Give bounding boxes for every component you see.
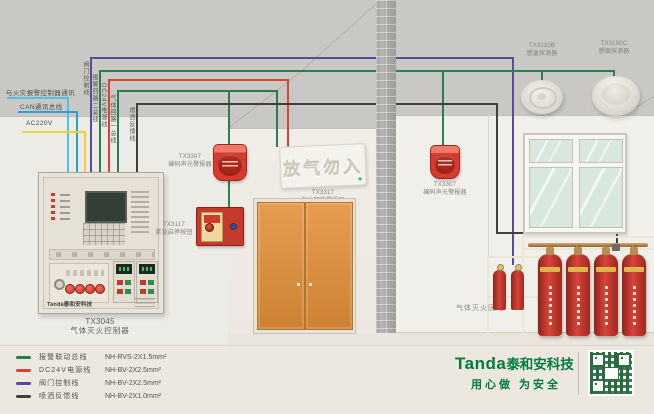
window-pane xyxy=(529,139,573,163)
wire-gas-bus-h xyxy=(117,90,278,92)
door-leaf-right xyxy=(305,202,353,330)
qr-dot xyxy=(595,383,597,385)
detector-dome xyxy=(602,83,630,105)
left-sounder-name: 编码声光警报器 xyxy=(168,161,212,169)
wire-valve-h xyxy=(90,57,513,59)
emergency-button-caption: TX3117 紧急启停按钮 xyxy=(154,221,194,238)
brand-company: 泰和安科技 xyxy=(506,353,574,373)
double-door xyxy=(253,198,356,334)
module-stop-button xyxy=(125,280,131,285)
wire-spray-v-panel xyxy=(136,103,138,172)
legend-spec: NH-BV-2X1.0mm² xyxy=(105,393,161,400)
legend-row-alarm-bus: 报警联动总线 NH-RVS-2X1.5mm² xyxy=(16,352,166,362)
heat-detector-model: TX3110B xyxy=(516,42,568,50)
door-handle-right xyxy=(309,283,312,286)
wire-gas-bus-drop-sign xyxy=(276,90,278,147)
panel-indicator-block xyxy=(129,191,153,235)
button-indicator xyxy=(230,223,237,230)
panel-manual-section xyxy=(49,263,109,303)
label-can-bus: CAN通讯总线 xyxy=(20,101,63,111)
label-fire-comm: 与火灾报警控制器通讯 xyxy=(6,87,75,97)
window xyxy=(523,133,627,234)
window-pane xyxy=(529,167,573,228)
label-alarm-bus: 报警回路二总线 xyxy=(90,74,99,123)
right-sounder-caption: TX3307 编码声光警报器 xyxy=(417,181,473,198)
wire-can-v xyxy=(76,111,78,172)
brand-logo: Tanda xyxy=(455,354,506,374)
module-aux-button xyxy=(140,289,146,294)
qr-center-logo xyxy=(604,367,619,380)
panel-lcd-display xyxy=(85,191,127,223)
window-pane xyxy=(579,139,623,163)
legend-swatch-purple xyxy=(16,382,31,385)
button-pushbutton xyxy=(205,223,214,232)
legend-spec: NH-BV-2X2.5mm² xyxy=(105,367,161,374)
module-digits xyxy=(142,267,154,271)
label-gas-bus: 气体回路一总线 xyxy=(108,95,117,144)
brand-slogan: 用心做 为安全 xyxy=(471,376,561,392)
module-start-button xyxy=(140,280,146,285)
legend-spec: NH-RVS-2X1.5mm² xyxy=(105,354,166,361)
gas-suppression-system-diagram: 与火灾报警控制器通讯 CAN通讯总线 AC220V 阀门控制线 报警回路二总线 … xyxy=(0,0,654,414)
sign-model: TX3317 xyxy=(290,189,356,197)
agent-cylinder xyxy=(538,254,562,336)
wire-spray-v-down xyxy=(496,103,498,233)
module-aux-button2 xyxy=(125,289,131,294)
window-pane xyxy=(579,167,623,228)
legend-swatch-green xyxy=(16,356,31,359)
emergency-start-stop-button xyxy=(196,207,244,246)
brand-divider xyxy=(578,352,579,395)
qr-code xyxy=(588,350,634,396)
wire-drop-right-sounder xyxy=(442,70,444,147)
wire-ac220-h xyxy=(22,131,85,133)
sign-text: 放气勿入 xyxy=(282,152,363,180)
left-sounder-caption: TX3307 编码声光警报器 xyxy=(168,153,212,170)
heat-detector-caption: TX3110B 感温探测器 xyxy=(516,42,568,59)
wire-valve-v-cylinders xyxy=(512,57,514,265)
brick-pillar xyxy=(376,0,396,333)
gas-release-warning-sign: 放气勿入 xyxy=(279,143,367,189)
panel-red-button xyxy=(85,284,95,294)
wire-dc24v-h xyxy=(108,79,289,81)
agent-cylinder xyxy=(622,254,646,336)
wire-alarm-bus-h xyxy=(99,70,614,72)
panel-zone-module-2 xyxy=(136,261,158,303)
wire-fire-comm-h xyxy=(7,97,68,99)
emergency-button-model: TX3117 xyxy=(154,221,194,229)
qr-finder xyxy=(591,379,605,393)
wire-dc24v-drop-sign xyxy=(287,79,289,147)
agent-cylinder xyxy=(594,254,618,336)
smoke-detector-caption: TX3100C 感烟探测器 xyxy=(586,40,642,57)
smoke-detector-model: TX3100C xyxy=(586,40,642,48)
left-sounder-model: TX3307 xyxy=(168,153,212,161)
panel-brand-text: Tanda泰和安科技 xyxy=(47,300,92,308)
label-spray-feedback: 喷洒反馈线 xyxy=(127,107,136,142)
qr-finder xyxy=(591,353,605,367)
sounder-horn-marks xyxy=(222,161,238,167)
starter-bottle xyxy=(511,270,524,310)
module-display xyxy=(116,264,132,274)
door-leaf-left xyxy=(257,202,305,330)
module-stop-button xyxy=(148,280,154,285)
detector-core xyxy=(537,93,546,100)
wire-drop-left-sounder xyxy=(228,90,230,146)
panel-red-button xyxy=(65,284,75,294)
button-plate-stripe xyxy=(204,215,220,223)
panel-key-switch xyxy=(54,279,65,290)
smoke-detector xyxy=(592,76,640,116)
agent-cylinder xyxy=(566,254,590,336)
panel-button-strip xyxy=(49,249,155,260)
label-dc24v: DC24V电源线 xyxy=(99,83,108,128)
wire-sounder-to-button xyxy=(228,179,230,207)
brand-row: Tanda 泰和安科技 xyxy=(455,353,574,374)
panel-sub-leds xyxy=(66,270,104,276)
label-valve-control: 阀门控制线 xyxy=(81,61,90,96)
wire-spray-h xyxy=(136,103,498,105)
module-aux-button2 xyxy=(148,289,154,294)
module-aux-button xyxy=(117,289,123,294)
panel-led-column xyxy=(51,193,71,223)
legend-spec: NH-BV-2X2.5mm² xyxy=(105,380,161,387)
legend-label: 报警联动总线 xyxy=(39,352,105,362)
left-sounder-strobe xyxy=(213,144,247,181)
right-sounder-model: TX3307 xyxy=(417,181,473,189)
module-digits xyxy=(119,267,131,271)
qr-dot xyxy=(621,357,623,359)
legend-label: 阀门控制线 xyxy=(39,378,105,388)
wire-fire-comm-v xyxy=(67,97,69,172)
qr-dot xyxy=(595,357,597,359)
label-ac220: AC220V xyxy=(26,120,53,127)
legend-label: DC24V电源线 xyxy=(39,365,105,375)
panel-caption-name: 气体灭火控制器 xyxy=(38,326,162,337)
door-handle-left xyxy=(297,283,300,286)
smoke-detector-name: 感烟探测器 xyxy=(586,48,642,56)
emergency-button-name: 紧急启停按钮 xyxy=(154,229,194,237)
module-display xyxy=(139,264,155,274)
wire-gas-bus-v-panel xyxy=(117,90,119,172)
legend-swatch-black xyxy=(16,395,31,398)
right-sounder-strobe xyxy=(430,145,460,179)
ceiling-edge-corner xyxy=(302,2,378,71)
panel-zone-module-1 xyxy=(113,261,135,303)
legend-row-dc24v: DC24V电源线 NH-BV-2X2.5mm² xyxy=(16,365,161,375)
wire-can-h xyxy=(18,111,77,113)
heat-detector-name: 感温探测器 xyxy=(516,50,568,58)
legend-row-spray: 喷洒反馈线 NH-BV-2X1.0mm² xyxy=(16,391,161,401)
module-start-button xyxy=(117,280,123,285)
gas-control-panel: Tanda泰和安科技 xyxy=(38,172,164,314)
panel-keypad xyxy=(83,223,125,245)
heat-detector xyxy=(521,80,563,114)
right-sounder-name: 编码声光警报器 xyxy=(417,189,473,197)
legend-row-valve: 阀门控制线 NH-BV-2X2.5mm² xyxy=(16,378,161,388)
sounder-horn-marks xyxy=(438,160,452,166)
starter-bottle xyxy=(493,270,506,310)
sign-indicator-dot xyxy=(359,177,362,180)
qr-finder xyxy=(617,353,631,367)
panel-red-button xyxy=(95,284,105,294)
panel-red-button xyxy=(75,284,85,294)
panel-spec-lines xyxy=(135,298,155,307)
legend-label: 喷洒反馈线 xyxy=(39,391,105,401)
wire-ac220-v xyxy=(84,131,86,172)
pressure-switch xyxy=(612,244,620,251)
legend-swatch-red xyxy=(16,369,31,372)
